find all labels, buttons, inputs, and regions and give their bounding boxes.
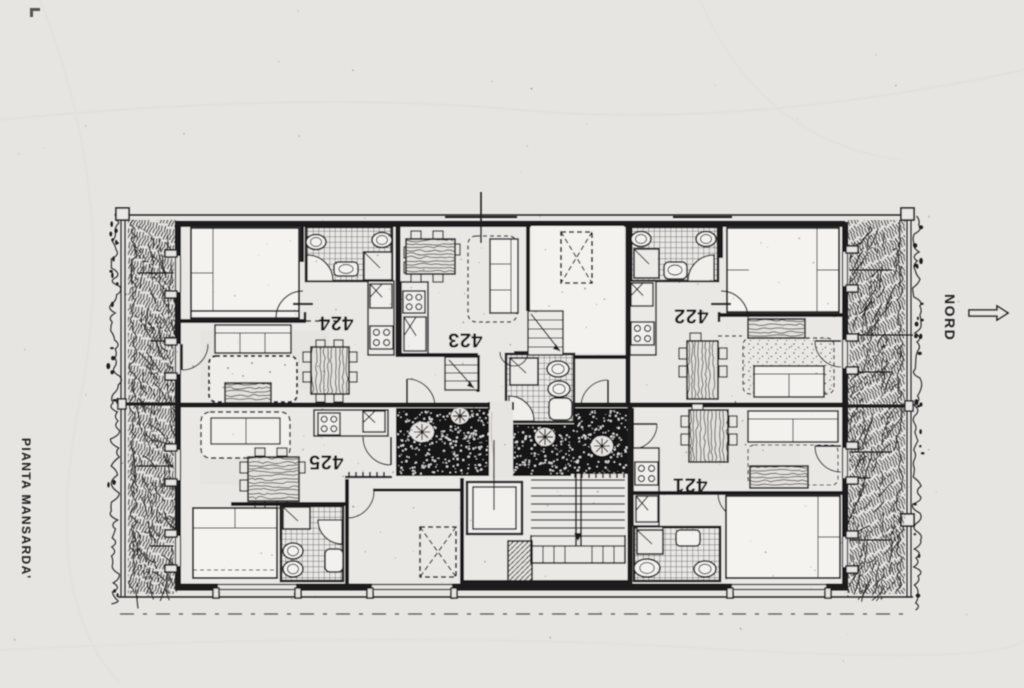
svg-text:NORD: NORD: [942, 294, 958, 341]
svg-text:424: 424: [318, 312, 353, 334]
svg-text:PIANTA MANSARDA’: PIANTA MANSARDA’: [19, 438, 33, 580]
svg-text:422: 422: [674, 305, 709, 327]
svg-text:425: 425: [309, 451, 344, 473]
svg-text:423: 423: [448, 329, 483, 351]
